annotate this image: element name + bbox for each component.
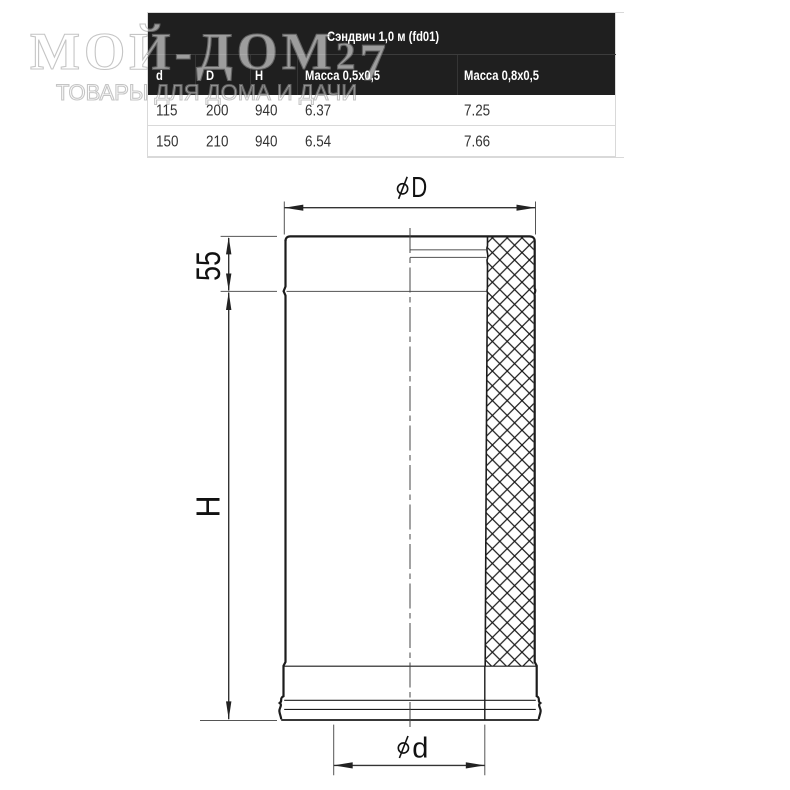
svg-text:55: 55 [190, 251, 228, 281]
svg-text:d: d [412, 733, 428, 765]
svg-text:H: H [189, 496, 226, 518]
svg-text:D: D [411, 172, 427, 204]
